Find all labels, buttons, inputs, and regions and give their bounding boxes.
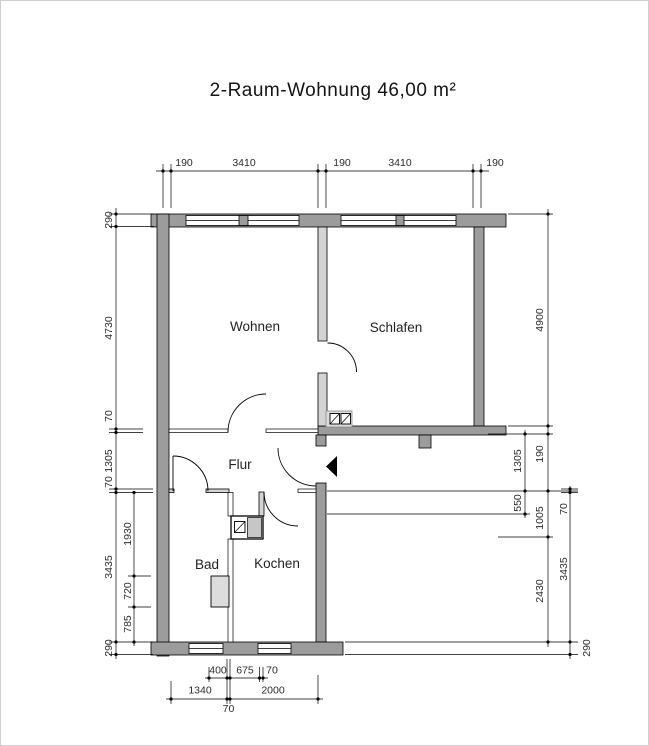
page-title: 2-Raum-Wohnung 46,00 m² bbox=[210, 80, 457, 101]
dim-label: 1305 bbox=[103, 449, 115, 473]
dim-label: 785 bbox=[122, 615, 134, 633]
shaft-gray-cell bbox=[248, 518, 262, 538]
dim-label: 3435 bbox=[558, 557, 570, 581]
dim-label: 550 bbox=[512, 494, 524, 512]
wall-entry-top bbox=[316, 435, 326, 446]
wall-niche-right bbox=[259, 492, 264, 516]
dim-label: 190 bbox=[486, 157, 504, 169]
dim-label: 190 bbox=[534, 445, 546, 463]
wall-stub bbox=[419, 435, 431, 448]
washbasin-icon bbox=[211, 576, 229, 607]
wall-wohnen-flur-right bbox=[266, 429, 318, 433]
wall-kochen-top bbox=[298, 489, 316, 493]
dim-label: 70 bbox=[223, 703, 235, 715]
room-label-schlafen: Schlafen bbox=[370, 320, 423, 335]
dim-label: 2000 bbox=[261, 685, 285, 697]
dim-label: 290 bbox=[581, 639, 593, 657]
wall-bottom bbox=[151, 642, 343, 655]
dim-label: 70 bbox=[266, 665, 278, 677]
room-labels: Wohnen Schlafen Flur Bad Kochen bbox=[195, 319, 422, 572]
dim-label: 3410 bbox=[232, 157, 256, 169]
wall-left bbox=[157, 214, 169, 656]
dim-label: 70 bbox=[103, 476, 115, 488]
dim-label: 720 bbox=[122, 582, 134, 600]
dim-label: 190 bbox=[175, 157, 193, 169]
floorplan-drawing: 2-Raum-Wohnung 46,00 m² bbox=[1, 1, 648, 745]
wall-bad-top-right bbox=[206, 489, 229, 493]
room-label-wohnen: Wohnen bbox=[230, 319, 280, 334]
dim-label: 1340 bbox=[188, 685, 212, 697]
dim-label: 400 bbox=[209, 665, 227, 677]
wall-divider-upper bbox=[318, 227, 327, 341]
dimension-labels: 190 3410 190 3410 190 290 4730 70 1305 7… bbox=[103, 157, 593, 715]
dim-label: 290 bbox=[103, 211, 115, 229]
entry-door-marker-icon bbox=[326, 456, 337, 477]
dim-label: 3435 bbox=[103, 555, 115, 579]
wall-right bbox=[474, 227, 484, 426]
door-arc-wohnen-icon bbox=[228, 394, 266, 432]
wall-flur-right bbox=[316, 483, 326, 642]
dim-label: 1305 bbox=[512, 449, 524, 473]
interior-walls bbox=[169, 227, 327, 642]
wall-bad-kochen-upper bbox=[228, 493, 233, 517]
floorplan-page: 2-Raum-Wohnung 46,00 m² bbox=[0, 0, 649, 746]
dim-label: 1005 bbox=[534, 506, 546, 530]
door-arc-kochen-icon bbox=[264, 492, 298, 526]
exterior-walls bbox=[151, 214, 506, 656]
window-mullion bbox=[396, 216, 404, 226]
room-label-flur: Flur bbox=[228, 457, 252, 472]
room-label-kochen: Kochen bbox=[254, 556, 300, 571]
dim-label: 4900 bbox=[534, 308, 546, 332]
dim-label: 70 bbox=[558, 503, 570, 515]
window-mullion bbox=[239, 216, 248, 226]
door-arc-entry-icon bbox=[278, 448, 316, 486]
dim-label: 675 bbox=[236, 665, 254, 677]
dim-label: 4730 bbox=[103, 316, 115, 340]
wall-wohnen-flur-left bbox=[169, 429, 228, 433]
room-label-bad: Bad bbox=[195, 557, 219, 572]
dim-label: 70 bbox=[103, 410, 115, 422]
dim-label: 290 bbox=[103, 639, 115, 657]
door-arc-bad-icon bbox=[173, 456, 208, 491]
dim-label: 190 bbox=[333, 157, 351, 169]
dim-label: 2430 bbox=[534, 579, 546, 603]
door-arc-schlafen-icon bbox=[328, 343, 357, 372]
dim-label: 3410 bbox=[388, 157, 412, 169]
dim-label: 1930 bbox=[122, 522, 134, 546]
